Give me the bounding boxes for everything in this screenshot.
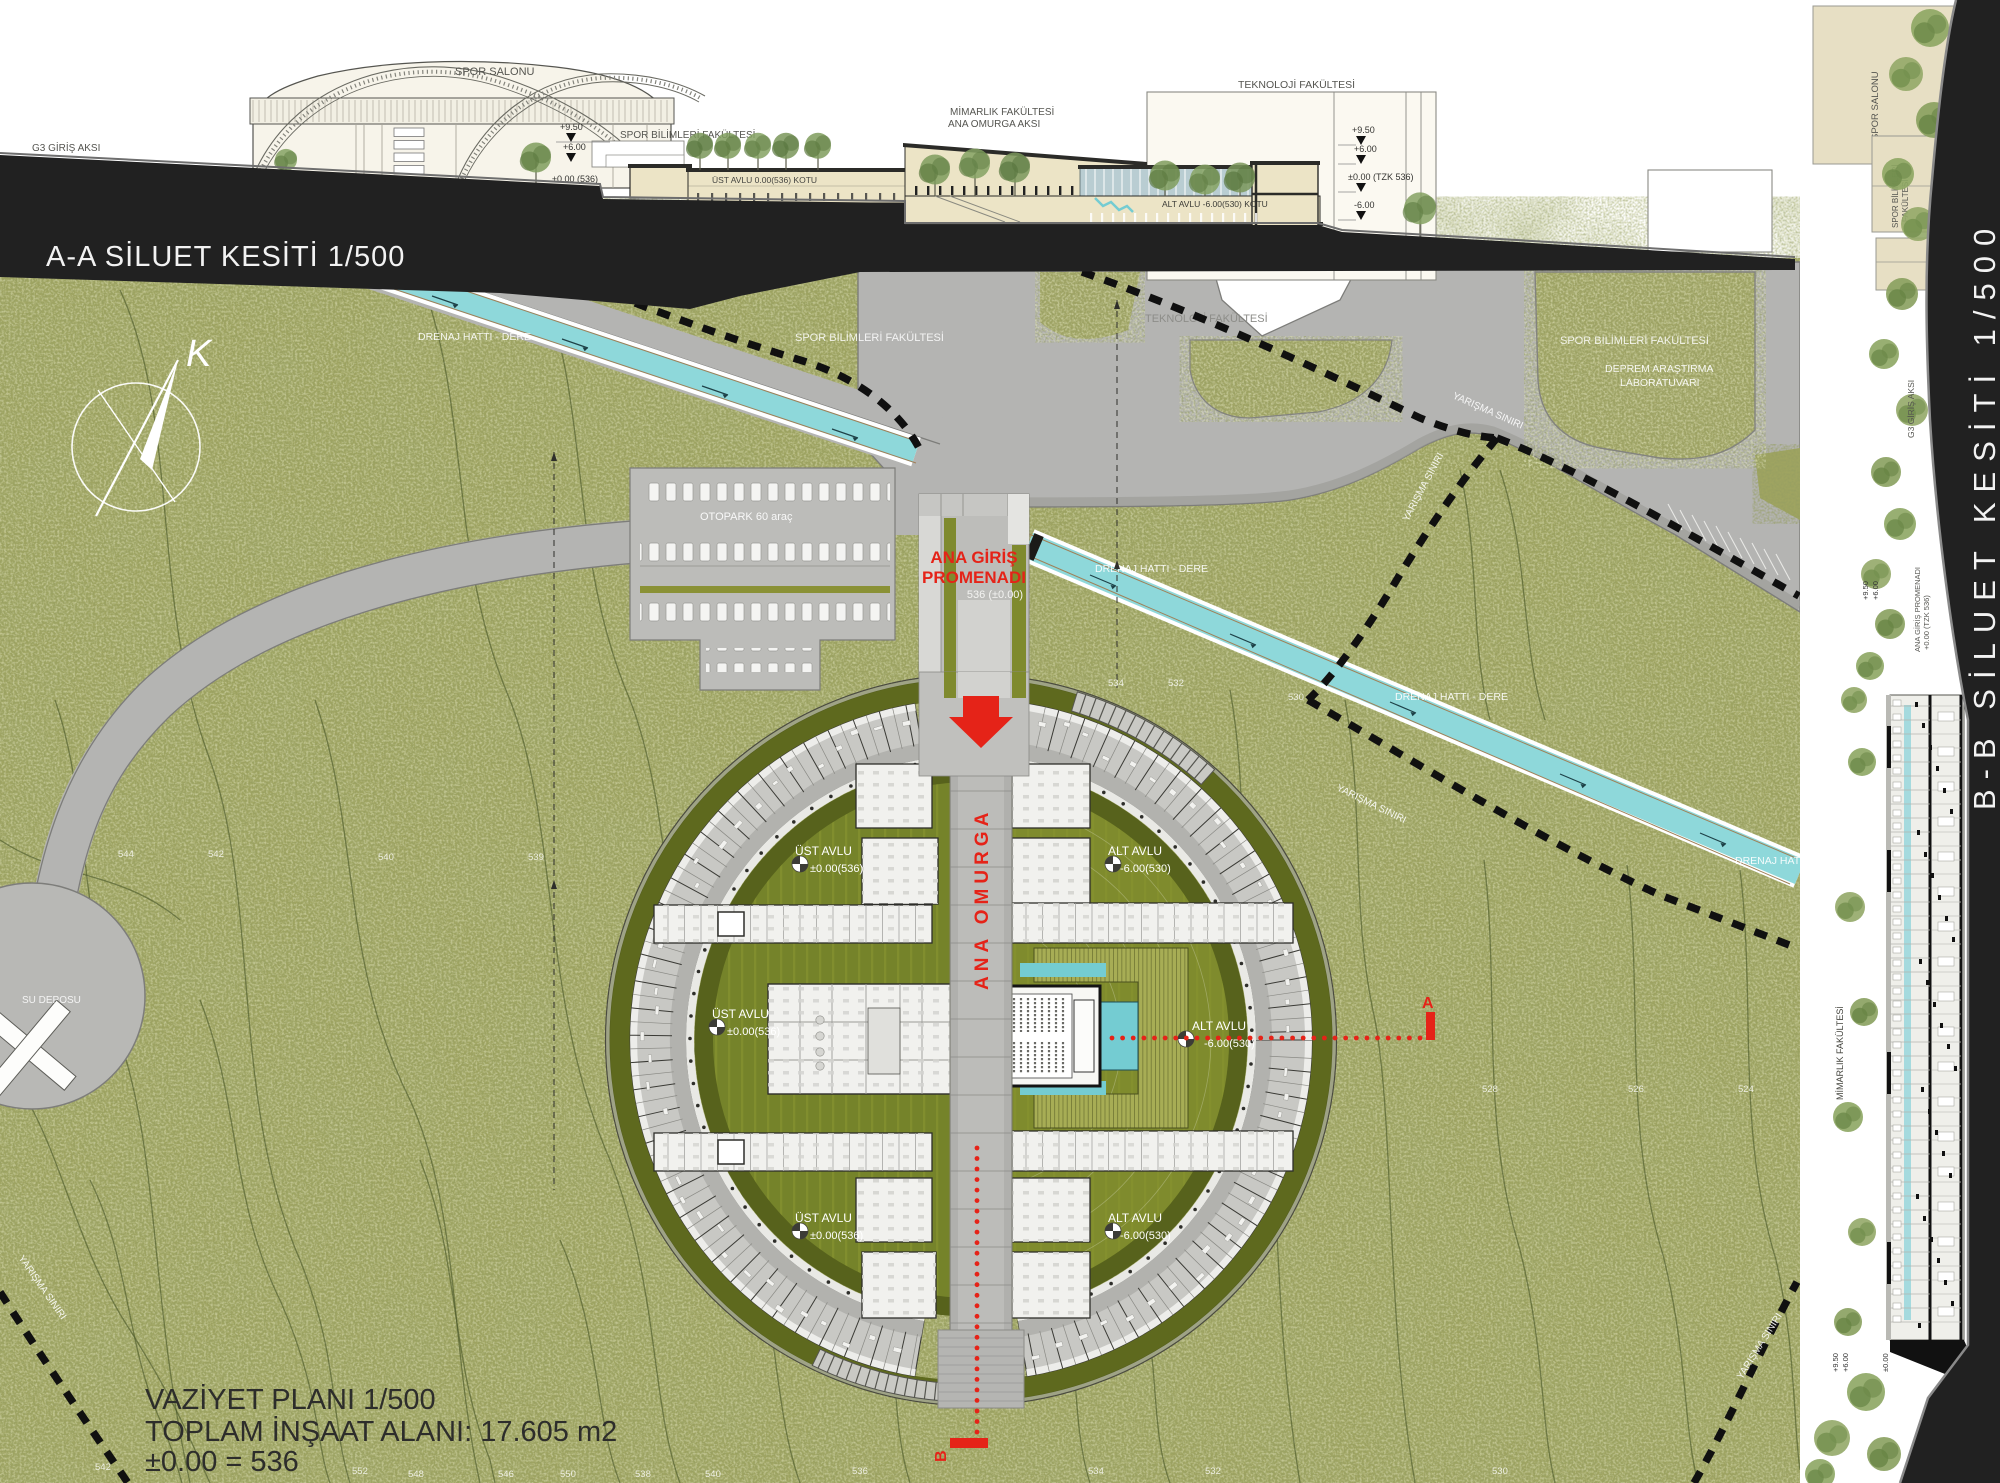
svg-text:532: 532	[1168, 678, 1184, 689]
svg-text:548: 548	[408, 1469, 424, 1480]
svg-text:ÜST AVLU: ÜST AVLU	[712, 1007, 769, 1021]
svg-text:536 (±0.00): 536 (±0.00)	[967, 589, 1023, 601]
svg-text:DRENAJ HATTI - DERE: DRENAJ HATTI - DERE	[418, 331, 531, 343]
svg-text:+9.50: +9.50	[1352, 125, 1375, 135]
svg-text:±0.00(536): ±0.00(536)	[810, 863, 863, 875]
svg-text:ANA GİRİŞ: ANA GİRİŞ	[930, 548, 1017, 567]
svg-text:ALT AVLU: ALT AVLU	[1108, 844, 1162, 858]
svg-text:534: 534	[1088, 1466, 1104, 1477]
svg-text:MİMARLIK FAKÜLTESİ: MİMARLIK FAKÜLTESİ	[1835, 1006, 1845, 1100]
svg-text:+6.00: +6.00	[1871, 581, 1880, 600]
svg-text:524: 524	[1738, 1084, 1754, 1095]
svg-text:530: 530	[1288, 692, 1304, 703]
svg-text:DRENAJ HATTI: DRENAJ HATTI	[1735, 855, 1809, 867]
svg-text:LABORATUVARI: LABORATUVARI	[1620, 377, 1700, 389]
svg-text:-6.00(530): -6.00(530)	[1120, 1230, 1171, 1242]
svg-text:542: 542	[208, 849, 224, 860]
svg-text:DRENAJ HATTI - DERE: DRENAJ HATTI - DERE	[1395, 691, 1508, 703]
svg-text:+9.50: +9.50	[1831, 1353, 1840, 1372]
svg-text:SPOR SALONU: SPOR SALONU	[455, 66, 535, 78]
svg-text:+6.00: +6.00	[1841, 1353, 1850, 1372]
svg-text:G3 GİRİŞ AKSI: G3 GİRİŞ AKSI	[32, 141, 100, 154]
svg-text:TOPLAM İNŞAAT ALANI: 17.605 m2: TOPLAM İNŞAAT ALANI: 17.605 m2	[145, 1415, 617, 1448]
svg-text:DRENAJ HATTI - DERE: DRENAJ HATTI - DERE	[1095, 563, 1208, 575]
svg-text:540: 540	[378, 852, 394, 863]
svg-text:B: B	[933, 1450, 950, 1462]
svg-text:ALT AVLU -6.00(530) KOTU: ALT AVLU -6.00(530) KOTU	[1162, 199, 1268, 209]
svg-text:+6.00: +6.00	[1354, 144, 1377, 154]
svg-text:A-A SİLUET KESİTİ 1/500: A-A SİLUET KESİTİ 1/500	[46, 240, 405, 273]
svg-text:SPOR BİLİMLERİ FAKÜLTESİ: SPOR BİLİMLERİ FAKÜLTESİ	[1560, 334, 1709, 347]
svg-text:±0.00(536): ±0.00(536)	[810, 1230, 863, 1242]
svg-text:ÜST AVLU: ÜST AVLU	[795, 844, 852, 858]
svg-text:SPOR SALONU: SPOR SALONU	[1870, 71, 1881, 140]
svg-text:-6.00(530): -6.00(530)	[1120, 863, 1171, 875]
svg-text:B-B SİLUET KESİTİ 1/500: B-B SİLUET KESİTİ 1/500	[1967, 219, 2000, 810]
svg-text:539: 539	[528, 852, 544, 863]
svg-text:TEKNOLOJİ FAKÜLTESİ: TEKNOLOJİ FAKÜLTESİ	[1238, 78, 1355, 91]
svg-text:ÜST AVLU 0.00(536) KOTU: ÜST AVLU 0.00(536) KOTU	[712, 175, 817, 185]
svg-text:MİMARLIK FAKÜLTESİ: MİMARLIK FAKÜLTESİ	[950, 105, 1054, 118]
svg-text:±0.00: ±0.00	[1881, 1353, 1890, 1372]
svg-text:534: 534	[1108, 678, 1124, 689]
svg-text:±0.00 (TZK 536): ±0.00 (TZK 536)	[1348, 172, 1413, 182]
svg-text:544: 544	[118, 849, 134, 860]
svg-text:SU DEPOSU: SU DEPOSU	[22, 995, 81, 1006]
svg-text:552: 552	[352, 1466, 368, 1477]
svg-text:±0.00 = 536: ±0.00 = 536	[145, 1446, 299, 1478]
svg-text:-6.00: -6.00	[1354, 200, 1375, 210]
svg-text:+9.50: +9.50	[560, 122, 583, 132]
svg-text:PROMENADI: PROMENADI	[922, 568, 1026, 587]
svg-text:ANA GİRİŞ PROMENADI: ANA GİRİŞ PROMENADI	[1913, 567, 1922, 652]
svg-text:542: 542	[95, 1462, 111, 1473]
svg-text:VAZİYET PLANI 1/500: VAZİYET PLANI 1/500	[145, 1383, 436, 1416]
svg-text:ALT AVLU: ALT AVLU	[1108, 1211, 1162, 1225]
svg-text:SPOR BİLİMLERİ FAKÜLTESİ: SPOR BİLİMLERİ FAKÜLTESİ	[795, 331, 944, 344]
svg-text:528: 528	[1482, 1084, 1498, 1095]
svg-text:OTOPARK 60 araç: OTOPARK 60 araç	[700, 511, 793, 523]
svg-text:550: 550	[560, 1469, 576, 1480]
svg-text:546: 546	[498, 1469, 514, 1480]
svg-text:+9.50: +9.50	[1861, 581, 1870, 600]
svg-text:536: 536	[852, 1466, 868, 1477]
svg-text:530: 530	[1492, 1466, 1508, 1477]
svg-text:K: K	[186, 333, 213, 375]
svg-text:DEPREM ARAŞTIRMA: DEPREM ARAŞTIRMA	[1605, 363, 1714, 375]
svg-text:532: 532	[1205, 1466, 1221, 1477]
svg-text:526: 526	[1628, 1084, 1644, 1095]
svg-text:A: A	[1422, 995, 1434, 1012]
svg-text:ANA OMURGA AKSI: ANA OMURGA AKSI	[948, 119, 1040, 130]
svg-text:ANA OMURGA: ANA OMURGA	[972, 808, 993, 990]
svg-text:+0.00 (TZK 536): +0.00 (TZK 536)	[1922, 595, 1931, 650]
svg-text:G3 GİRİŞ AKSI: G3 GİRİŞ AKSI	[1906, 380, 1916, 438]
svg-text:ALT AVLU: ALT AVLU	[1192, 1019, 1246, 1033]
svg-text:540: 540	[705, 1469, 721, 1480]
svg-text:+6.00: +6.00	[563, 142, 586, 152]
svg-text:±0.00(536): ±0.00(536)	[727, 1026, 780, 1038]
svg-text:538: 538	[635, 1469, 651, 1480]
svg-text:ÜST AVLU: ÜST AVLU	[795, 1211, 852, 1225]
